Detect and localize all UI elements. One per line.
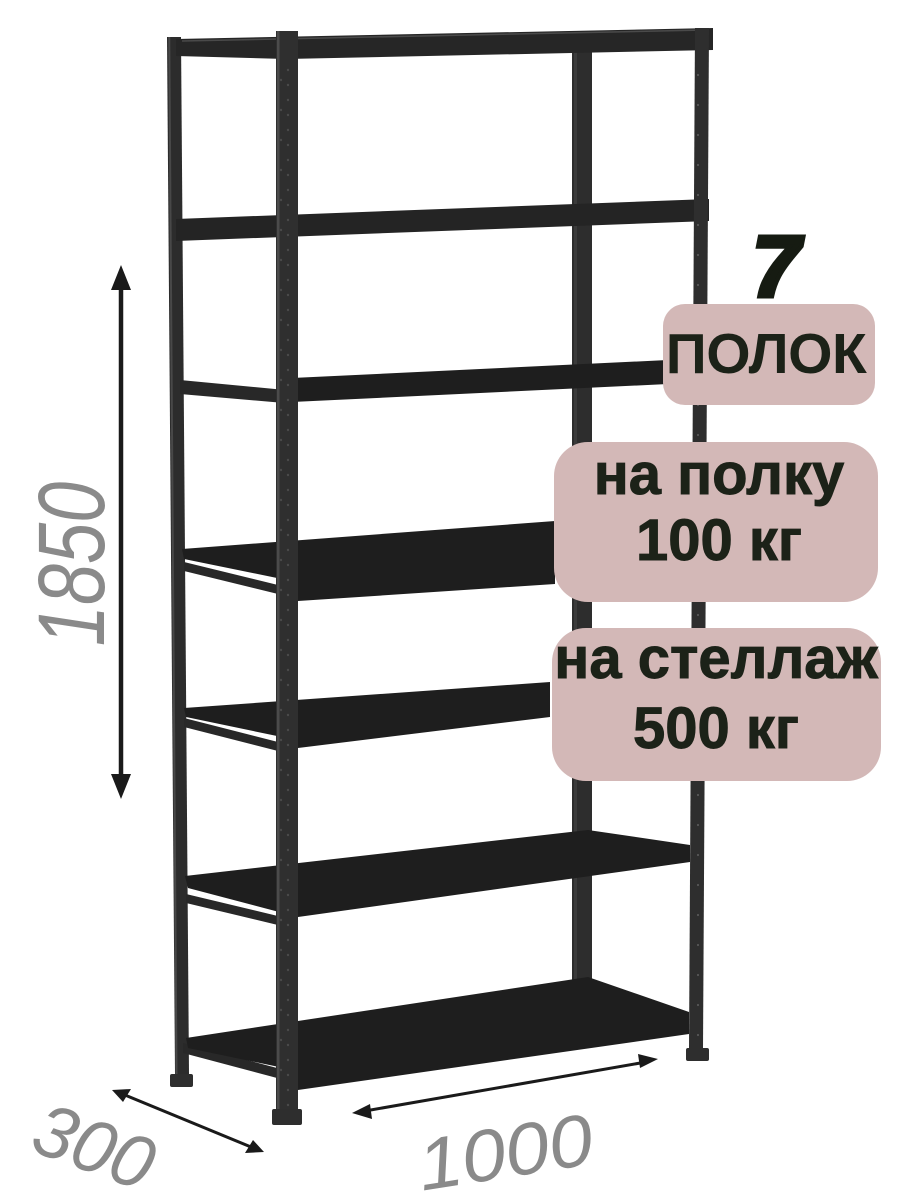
svg-text:1850: 1850 (19, 482, 125, 647)
svg-text:100 кг: 100 кг (636, 508, 802, 573)
svg-text:ПОЛОК: ПОЛОК (666, 322, 867, 386)
svg-text:на стеллаж: на стеллаж (554, 626, 878, 691)
svg-text:7: 7 (752, 219, 804, 315)
svg-text:на полку: на полку (594, 442, 845, 507)
svg-text:500 кг: 500 кг (633, 696, 799, 761)
